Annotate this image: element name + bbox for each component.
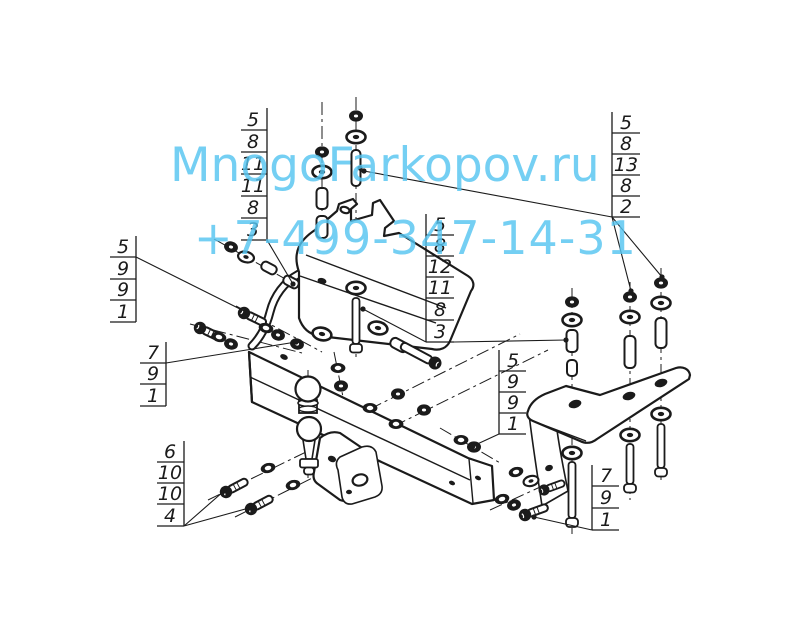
washer-icon (652, 297, 671, 309)
callout-number: 9 (147, 363, 159, 385)
washer-icon (522, 474, 539, 487)
tow-ball-exploded (297, 417, 321, 475)
callout-number: 13 (614, 154, 638, 176)
right-stack-1 (563, 296, 582, 376)
callout-number: 5 (507, 350, 519, 372)
bolt-icon (243, 492, 275, 517)
sleeve-icon (567, 360, 577, 376)
callout-number: 10 (158, 462, 182, 484)
callout-number: 8 (434, 299, 446, 321)
washer-icon (237, 250, 255, 264)
callout-number: 8 (434, 235, 446, 257)
washer-icon (621, 429, 640, 441)
fastener-cluster-top-left (223, 240, 300, 290)
nut-icon (349, 110, 363, 121)
leader-line (267, 240, 293, 284)
washer-icon (621, 311, 640, 323)
callout-number: 7 (147, 342, 159, 364)
washer-icon (454, 435, 469, 445)
callout-number: 9 (600, 487, 612, 509)
callout-number: 1 (117, 301, 129, 323)
callout-number: 8 (620, 133, 632, 155)
sleeve-icon (656, 318, 667, 348)
callout-number: 5 (434, 214, 446, 236)
callout-number: 11 (241, 153, 265, 175)
callout-number: 6 (164, 441, 176, 463)
washer-icon (313, 166, 332, 178)
tow-ball-mounted (296, 377, 321, 414)
callout-number: 8 (247, 197, 259, 219)
callout-number: 8 (247, 131, 259, 153)
nut-icon (565, 296, 579, 307)
washer-icon (347, 131, 366, 143)
washer-icon (563, 447, 582, 459)
screenshot-root: 5 8 11 11 8 3 5 8 13 8 2 5 8 12 11 8 3 5 (0, 0, 800, 640)
nut-icon (417, 404, 431, 415)
leader-line (136, 257, 246, 312)
callout-number: 11 (428, 277, 452, 299)
bolt-icon (218, 475, 250, 500)
callout-number: 8 (620, 175, 632, 197)
washer-icon (652, 408, 671, 420)
bolt-icon (655, 424, 667, 477)
leader-line (473, 434, 499, 446)
callout-number: 5 (247, 109, 259, 131)
callout-number: 5 (620, 112, 632, 134)
callout-number: 11 (241, 175, 265, 197)
sleeve-icon (317, 188, 328, 209)
callout-number: 9 (507, 371, 519, 393)
bolt-icon (566, 462, 578, 527)
callout-number: 9 (117, 258, 129, 280)
leader-line (534, 517, 592, 530)
washer-icon (285, 478, 302, 491)
callout-number: 12 (428, 256, 452, 278)
sleeve-icon (317, 216, 328, 238)
sleeve-icon (625, 336, 636, 368)
callout-number: 2 (620, 196, 632, 218)
washer-icon (260, 461, 277, 474)
washer-icon (347, 282, 366, 294)
right-stack-2 (621, 291, 640, 368)
bottom-left-bolt-set (218, 461, 302, 517)
washer-icon (563, 314, 582, 326)
nut-icon (331, 363, 346, 373)
callout-number: 10 (158, 483, 182, 505)
sleeve-icon (260, 260, 278, 275)
callout-number: 3 (247, 219, 259, 241)
bolt-icon (350, 298, 362, 353)
nut-icon (334, 380, 348, 391)
washer-icon (508, 465, 525, 478)
callout-number: 4 (164, 505, 176, 527)
callout-number: 3 (434, 321, 446, 343)
callout-number: 1 (147, 385, 159, 407)
callout-number: 9 (507, 392, 519, 414)
exploded-view-drawing: 5 8 11 11 8 3 5 8 13 8 2 5 8 12 11 8 3 5 (0, 0, 800, 640)
callout-number: 7 (600, 465, 612, 487)
nut-icon (391, 388, 405, 399)
bolt-icon (624, 444, 636, 493)
callout-number: 5 (117, 236, 129, 258)
nut-icon (315, 146, 329, 157)
callout-number: 9 (117, 279, 129, 301)
right-stack-3 (652, 277, 671, 348)
callout-table-right: 5 9 9 1 (470, 350, 526, 449)
washer-icon (363, 403, 378, 413)
callout-number: 1 (507, 413, 519, 435)
washer-icon (389, 419, 404, 429)
callout-number: 1 (600, 509, 612, 531)
